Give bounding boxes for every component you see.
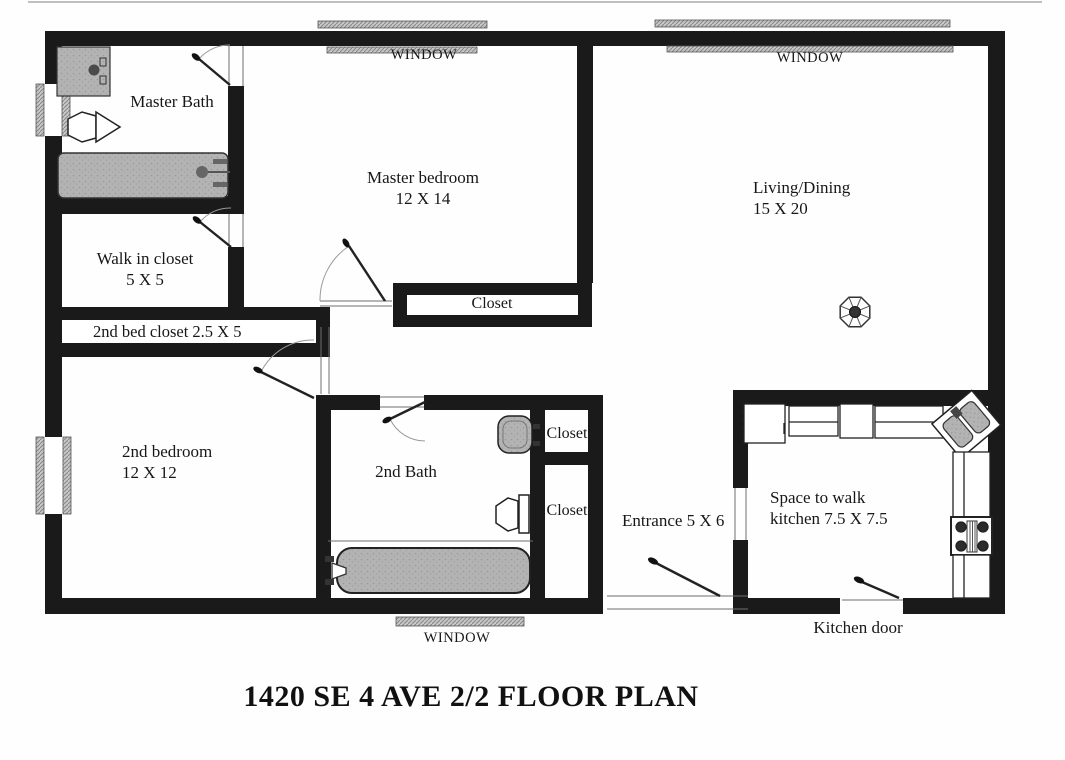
- window-strip-top-left-outer: [318, 21, 487, 28]
- tub2-handle-top: [325, 556, 334, 562]
- kitchen-cabinet-2: [789, 406, 838, 436]
- hall-closet-lower-label: Closet: [547, 500, 588, 521]
- entrance-door: [647, 556, 720, 596]
- master-bath-door: [190, 45, 230, 85]
- window-label-top-right: WINDOW: [777, 48, 844, 69]
- master-closet-label: Closet: [472, 293, 513, 314]
- master-bath-label: Master Bath: [130, 91, 214, 112]
- window-strip-bottom: [396, 617, 524, 626]
- tub-handle-bottom: [213, 182, 227, 187]
- bath-sink-handle-bottom: [533, 441, 540, 446]
- kitchen-door-label: Kitchen door: [813, 617, 902, 638]
- bath-toilet-tank: [519, 495, 529, 533]
- second-bed-closet-label: 2nd bed closet 2.5 X 5: [93, 321, 241, 342]
- kitchen-door-swing: [853, 575, 899, 598]
- wall-walkin-closet-right: [228, 247, 244, 307]
- stove-burner-2: [978, 522, 988, 532]
- second-bedroom-label: 2nd bedroom 12 X 12: [122, 441, 212, 483]
- wall-second-bath-top-b: [424, 395, 603, 410]
- wall-second-bath-top-a: [316, 395, 380, 410]
- bath-toilet-icon: [496, 498, 518, 531]
- entrance-label: Entrance 5 X 6: [622, 510, 724, 531]
- window-label-top-left: WINDOW: [391, 45, 458, 66]
- ceiling-fan-icon: [840, 297, 870, 327]
- wall-kitchen-bottom-left: [737, 598, 840, 614]
- wall-hall-closet-right: [588, 395, 603, 614]
- master-bedroom-door: [320, 237, 385, 301]
- second-bathtub: [337, 548, 530, 593]
- master-toilet-icon: [68, 112, 96, 142]
- page-title: 1420 SE 4 AVE 2/2 FLOOR PLAN: [243, 680, 698, 714]
- second-bath-label: 2nd Bath: [375, 461, 437, 482]
- vanity-sink: [57, 47, 110, 96]
- tub-handle-top: [213, 159, 227, 164]
- window-strip-bedroom2-inner: [63, 437, 71, 514]
- wall-exterior-top: [45, 31, 1005, 46]
- window-label-bottom: WINDOW: [424, 628, 491, 649]
- tub-faucet-icon: [196, 166, 208, 178]
- wall-master-living-divider: [577, 46, 593, 283]
- window-gap-second-bedroom: [45, 437, 62, 514]
- stove-burner-1: [956, 522, 966, 532]
- master-toilet-tank-icon: [96, 112, 120, 142]
- wall-kitchen-bottom-right: [903, 598, 1005, 614]
- refrigerator: [953, 452, 990, 517]
- base-cabinet: [953, 555, 990, 598]
- second-bath-door: [381, 402, 425, 441]
- master-bath-fixtures: [57, 47, 230, 198]
- kitchen-cabinet-1: [744, 404, 785, 443]
- floor-plan-page: Master Bath WINDOW WINDOW Master bedroom…: [0, 0, 1065, 760]
- hall-closet-upper-label: Closet: [547, 423, 588, 444]
- tub2-handle-bottom: [325, 579, 334, 585]
- kitchen-label: Space to walk kitchen 7.5 X 7.5: [770, 487, 888, 529]
- window-strip-bedroom2-outer: [36, 437, 44, 514]
- vanity-faucet-icon: [89, 65, 100, 76]
- stove-burner-3: [956, 541, 966, 551]
- stove-burner-4: [978, 541, 988, 551]
- floor-plan-drawing: [0, 0, 1065, 760]
- walk-in-closet-label: Walk in closet 5 X 5: [97, 248, 194, 290]
- wall-master-bath-right: [228, 86, 244, 196]
- master-bedroom-label: Master bedroom 12 X 14: [367, 167, 479, 209]
- window-strip-top-right-outer: [655, 20, 950, 27]
- kitchen-cabinet-3: [840, 404, 873, 438]
- wall-kitchen-left-lower: [733, 540, 748, 614]
- bath-sink-handle-top: [533, 424, 540, 429]
- wall-closet-middle-divider: [530, 452, 603, 465]
- living-dining-label: Living/Dining 15 X 20: [753, 177, 850, 219]
- window-strip-bath-left-outer: [36, 84, 44, 136]
- second-bath-fixtures: [325, 416, 540, 593]
